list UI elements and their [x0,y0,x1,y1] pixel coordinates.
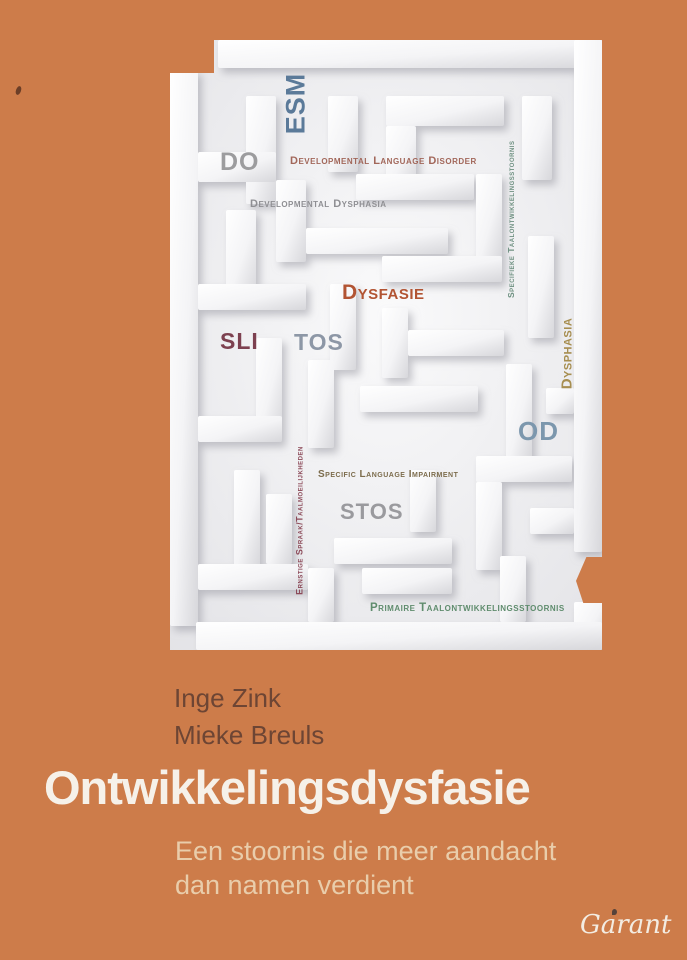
garant-logo-text: Garant [580,910,671,940]
maze-top-left-notch [170,40,214,73]
maze-label-developmental-dysphasia: Developmental Dysphasia [250,199,387,210]
maze-label-primaire-taalontwikkelingsstoornis: Primaire Taalontwikkelingsstoornis [370,603,565,615]
book-title: Ontwikkelingsdysfasie [44,760,530,815]
author-line-1: Inge Zink [174,680,324,717]
maze-label-developmental-language-disorder: Developmental Language Disorder [290,156,477,167]
book-cover: ESM DO Developmental Language Disorder D… [0,0,687,960]
maze-label-do: DO [220,150,260,175]
author-line-2: Mieke Breuls [174,717,324,754]
author-names: Inge Zink Mieke Breuls [174,680,324,754]
book-subtitle: Een stoornis die meer aandacht dan namen… [175,834,556,902]
maze-label-esm: ESM [283,70,310,138]
maze-illustration: ESM DO Developmental Language Disorder D… [170,40,602,650]
maze-label-sli: SLI [220,330,259,353]
subtitle-line-1: Een stoornis die meer aandacht [175,834,556,868]
maze-label-od: OD [518,418,559,444]
garant-publisher-logo: Garant [580,910,671,940]
maze-label-specifieke-taalontwikkelingsstoornis: Specifieke Taalontwikkelingsstoornis [507,133,516,305]
maze-label-tos: TOS [294,331,344,354]
maze-label-specific-language-impairment: Specific Language Impairment [318,470,458,480]
garant-logo-accent-dot [612,909,617,915]
maze-label-stos: STOS [340,501,404,523]
maze-label-dysfasie: Dysfasie [342,282,425,303]
maze-label-dysphasia: Dysphasia [560,308,575,400]
maze-label-ernstige-spraak-taalmoeilijkheden: Ernstige Spraak/Taalmoeilijkheden [296,433,305,609]
cover-speck [15,85,23,95]
subtitle-line-2: dan namen verdient [175,868,556,902]
